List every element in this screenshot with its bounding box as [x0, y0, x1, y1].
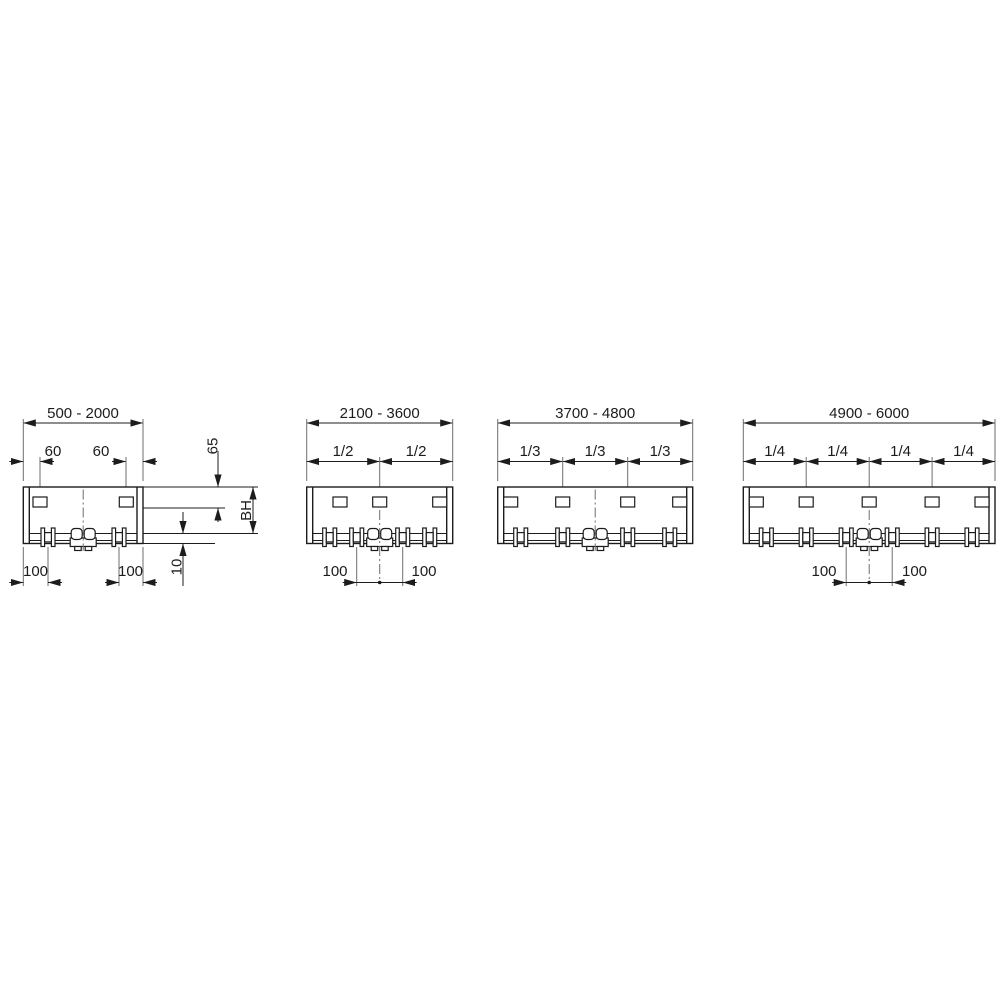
dim-origin-dot	[867, 581, 871, 585]
dim-label-bh: BH	[238, 500, 255, 521]
dim-label-third-2: 1/3	[585, 443, 606, 460]
technical-drawing-page: 500 - 2000 60 60 65 BH	[0, 0, 1000, 1000]
mounting-slot	[556, 497, 570, 507]
dim-label-quarter-1: 1/4	[764, 443, 785, 460]
mounting-slot	[799, 497, 813, 507]
mounting-slot	[925, 497, 939, 507]
dim-label-100-right: 100	[902, 563, 927, 580]
dim-label-100-right: 100	[118, 563, 143, 580]
dim-label-quarter-2: 1/4	[827, 443, 848, 460]
mounting-slot	[673, 497, 687, 507]
mounting-slot	[862, 497, 876, 507]
dim-origin-dot	[378, 581, 382, 585]
dim-label-60-left: 60	[45, 443, 62, 460]
mounting-slot	[433, 497, 447, 507]
dim-label-65: 65	[205, 438, 222, 455]
mounting-slot	[119, 497, 133, 507]
mounting-slot	[33, 497, 47, 507]
dim-label-third-1: 1/3	[520, 443, 541, 460]
dim-label-half-left: 1/2	[333, 443, 354, 460]
dim-label-100-left: 100	[23, 563, 48, 580]
mounting-slot	[333, 497, 347, 507]
dim-label-quarter-3: 1/4	[890, 443, 911, 460]
dim-label-100-left: 100	[322, 563, 347, 580]
range-label: 2100 - 3600	[340, 405, 420, 422]
mounting-slot	[975, 497, 989, 507]
range-label: 500 - 2000	[47, 405, 119, 422]
dim-label-100-right: 100	[411, 563, 436, 580]
dim-label-60-right: 60	[93, 443, 110, 460]
dim-label-100-left: 100	[811, 563, 836, 580]
dim-label-third-3: 1/3	[650, 443, 671, 460]
mounting-slot	[749, 497, 763, 507]
dim-label-10: 10	[169, 559, 186, 576]
mounting-slot	[504, 497, 518, 507]
dim-label-quarter-4: 1/4	[953, 443, 974, 460]
mounting-slot	[373, 497, 387, 507]
range-label: 3700 - 4800	[555, 405, 635, 422]
mounting-rail-diagram: 500 - 2000 60 60 65 BH	[0, 0, 1000, 1000]
mounting-slot	[621, 497, 635, 507]
dim-label-half-right: 1/2	[406, 443, 427, 460]
range-label: 4900 - 6000	[829, 405, 909, 422]
